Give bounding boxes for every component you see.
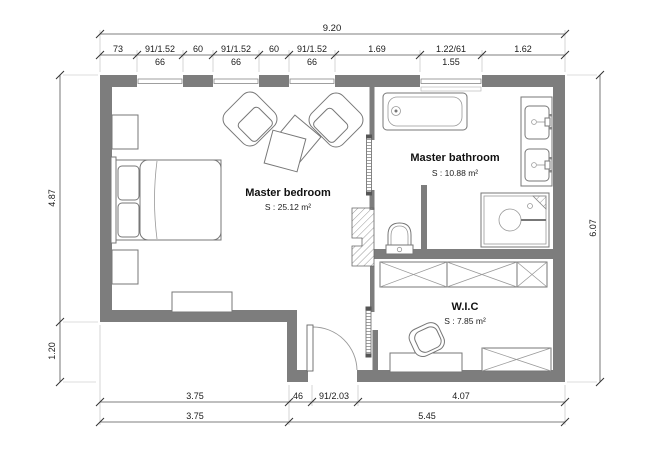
dim-top-seg: 73 xyxy=(113,44,123,54)
headboard xyxy=(111,157,116,243)
room-area-bedroom: S : 25.12 m² xyxy=(265,202,311,212)
room-label-bathroom: Master bathroom xyxy=(410,152,499,164)
bathtub xyxy=(383,93,467,130)
faucet-icon xyxy=(545,161,550,169)
bed xyxy=(111,157,221,243)
shower xyxy=(481,193,549,247)
dim-top-seg: 60 xyxy=(193,44,203,54)
dim-top-sub: 66 xyxy=(231,57,241,67)
faucet-icon xyxy=(545,118,550,126)
dim-bottom-seg: 3.75 xyxy=(186,391,204,401)
wardrobe xyxy=(447,262,517,287)
pillow xyxy=(118,203,139,237)
blanket xyxy=(140,160,221,240)
dim-top-seg: 91/1.52 xyxy=(145,44,175,54)
vanity xyxy=(521,97,552,186)
dim-top-sub: 1.55 xyxy=(442,57,460,67)
window xyxy=(213,75,259,88)
wall-bed-wic-partition xyxy=(370,266,375,312)
window xyxy=(420,75,482,92)
dim-top-total: 9.20 xyxy=(323,23,342,34)
nightstand xyxy=(112,250,138,284)
dim-bottom-seg: 46 xyxy=(293,391,303,401)
dim-top-seg: 91/1.52 xyxy=(221,44,251,54)
room-label-bedroom: Master bedroom xyxy=(245,187,331,199)
floor-plan: Master bedroom S : 25.12 m² Master bathr… xyxy=(0,0,650,450)
floor-plan-drawing: Master bedroom S : 25.12 m² Master bathr… xyxy=(0,0,650,450)
chimney-column xyxy=(352,208,374,266)
nightstand xyxy=(112,115,138,149)
wall-wic-pocket xyxy=(373,330,379,372)
dim-bottom-seg: 4.07 xyxy=(452,391,470,401)
room-area-wic: S : 7.85 m² xyxy=(444,316,486,326)
sink xyxy=(525,149,552,181)
dim-bottom-seg: 91/2.03 xyxy=(319,391,349,401)
dim-top-seg: 1.62 xyxy=(514,44,532,54)
window xyxy=(289,75,335,88)
sliding-door-wic xyxy=(366,307,372,358)
room-label-wic: W.I.C xyxy=(452,301,479,313)
wall-left xyxy=(100,75,112,322)
dim-top-seg: 91/1.52 xyxy=(297,44,327,54)
wall-right xyxy=(553,75,565,382)
wall-toilet-nook xyxy=(421,185,427,253)
dim-top-seg: 60 xyxy=(269,44,279,54)
entrance-door xyxy=(307,325,357,383)
dim-top-sub: 66 xyxy=(307,57,317,67)
sink xyxy=(525,106,552,139)
pillow xyxy=(118,166,139,200)
dim-bottom-seg: 3.75 xyxy=(186,411,204,421)
wardrobe xyxy=(517,262,547,287)
dim-top-sub: 66 xyxy=(155,57,165,67)
room-area-bathroom: S : 10.88 m² xyxy=(432,168,478,178)
sliding-door-bathroom xyxy=(366,135,372,196)
dim-top-seg: 1.69 xyxy=(368,44,386,54)
window xyxy=(137,75,183,88)
dim-left: 4.87 xyxy=(47,189,57,207)
dim-left: 1.20 xyxy=(47,342,57,360)
wardrobe xyxy=(380,262,447,287)
wardrobe xyxy=(482,348,551,371)
dim-bottom-seg: 5.45 xyxy=(418,411,436,421)
wall-bed-bath-partition xyxy=(370,87,375,140)
dim-right: 6.07 xyxy=(588,219,598,237)
toilet xyxy=(386,223,413,254)
dim-top-seg: 1.22/61 xyxy=(436,44,466,54)
bench xyxy=(172,292,232,312)
